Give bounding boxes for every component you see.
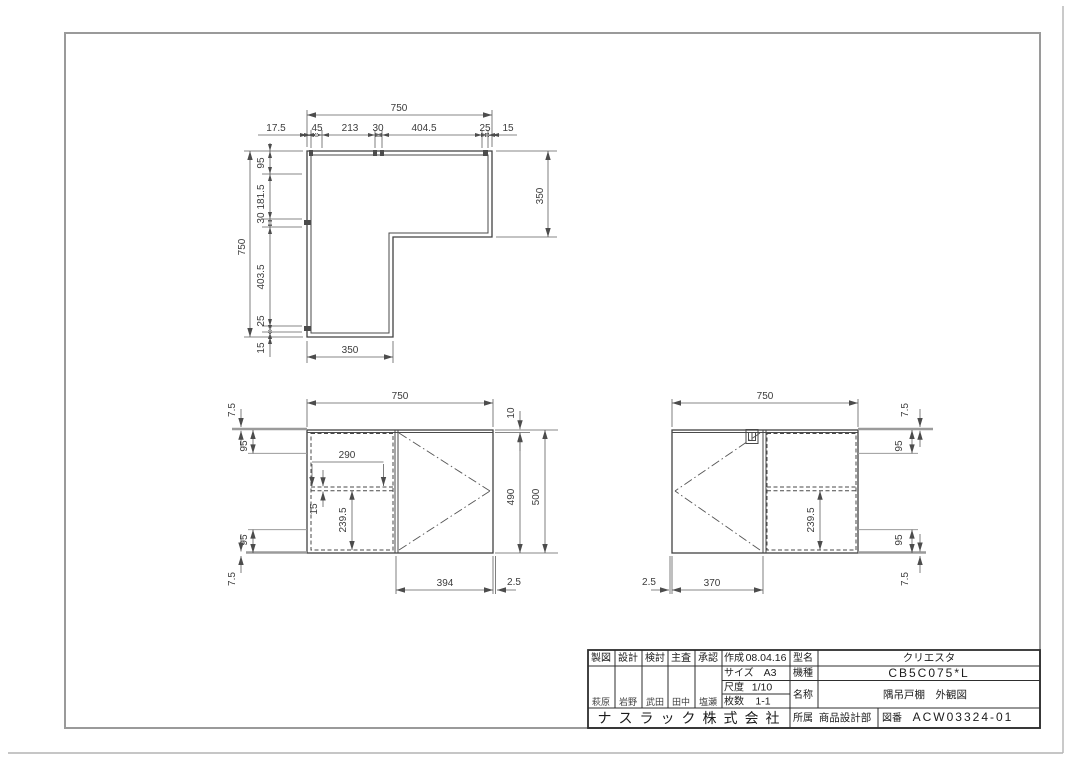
front-dim-top-gap: 10 (506, 407, 517, 419)
front-dim-door-height: 490 (506, 488, 517, 505)
side-dim-right-top-7-5: 7.5 (900, 403, 911, 417)
model-label: 型名 (793, 651, 813, 664)
model-value: クリエスタ (903, 652, 956, 664)
plan-dim-overall-depth: 750 (237, 238, 248, 255)
side-dim-shelf-height: 239.5 (806, 507, 817, 532)
plan-dim-30: 30 (372, 123, 384, 134)
drawing-sheet: 750 17.5 45 213 30 404.5 25 15 750 (0, 0, 1080, 764)
front-dim-shelf-height: 239.5 (338, 507, 349, 532)
side-dim-edge-gap: 2.5 (642, 577, 656, 588)
dept-label: 所属 (793, 712, 813, 724)
plan-outline-inner (311, 155, 488, 333)
cad-drawing: 750 17.5 45 213 30 404.5 25 15 750 (0, 0, 1080, 764)
front-dim-left-bottom-7-5: 7.5 (227, 572, 238, 586)
created-label: 作成 (724, 652, 744, 664)
plan-dim-15: 15 (502, 123, 514, 134)
plan-top-chain: 17.5 45 213 30 404.5 25 15 (258, 123, 517, 148)
size-value: A3 (764, 667, 777, 679)
plan-dim-17-5: 17.5 (266, 123, 286, 134)
plan-view: 750 17.5 45 213 30 404.5 25 15 750 (237, 103, 557, 363)
drawing-frame (65, 33, 1040, 728)
plan-dim-213: 213 (342, 123, 359, 134)
front-dim-left-top-7-5: 7.5 (227, 403, 238, 417)
scale-value: 1/10 (752, 682, 773, 694)
stamp-shiose: 塩瀬 (699, 696, 717, 707)
plan-outline (307, 151, 492, 337)
item-value: 隅吊戸棚 外観図 (883, 688, 967, 701)
side-cabinet-outline (672, 430, 858, 553)
role-label-drafting: 製図 (591, 651, 611, 664)
plan-left-chain: 95 181.5 30 403.5 25 15 (256, 143, 302, 357)
item-label: 名称 (793, 688, 813, 701)
plan-dim-181-5: 181.5 (256, 184, 267, 209)
plan-dim-45: 45 (311, 123, 323, 134)
machine-label: 機種 (793, 666, 813, 679)
front-dim-edge-gap: 2.5 (507, 577, 521, 588)
side-elevation: 750 239.5 7.5 95 95 7.5 (642, 391, 933, 594)
side-dim-right-bottom-95: 95 (894, 534, 905, 546)
side-dim-right-bottom-7-5: 7.5 (900, 572, 911, 586)
plan-dim-403-5: 403.5 (256, 264, 267, 289)
created-value: 08.04.16 (746, 652, 787, 664)
front-door-swing-line (399, 433, 490, 491)
role-label-chief: 主査 (671, 651, 691, 664)
plan-dim-25-left: 25 (256, 315, 267, 327)
paper-edge (8, 6, 1063, 753)
size-label: サイズ (724, 666, 754, 679)
plan-dim-25: 25 (479, 123, 491, 134)
dept-value: 商品設計部 (819, 711, 872, 724)
sheets-value: 1-1 (755, 696, 770, 708)
role-label-approval: 承認 (698, 651, 718, 664)
front-elevation: 750 290 15 239.5 10 490 500 (227, 391, 558, 594)
side-dim-right-top-95: 95 (894, 440, 905, 452)
role-label-review: 検討 (645, 651, 665, 664)
side-dim-door-width: 370 (704, 578, 721, 589)
stamp-takeda: 武田 (646, 696, 664, 707)
dwgno-value: ACW03324-01 (913, 710, 1014, 724)
sheets-label: 枚数 (724, 695, 744, 708)
plan-dim-30-left: 30 (256, 212, 267, 224)
role-label-design: 設計 (618, 651, 638, 664)
scale-label: 尺度 (724, 681, 744, 694)
stamp-iwano: 岩野 (619, 696, 637, 707)
plan-dim-overall-width: 750 (391, 103, 408, 114)
front-dim-shelf-thickness: 15 (309, 503, 320, 515)
front-door-swing-line (399, 491, 490, 550)
company-name: ナスラック株式会社 (598, 710, 787, 726)
plan-dim-15-left: 15 (256, 342, 267, 354)
front-cabinet-outline (307, 430, 493, 553)
stamp-hagiwara: 萩原 (592, 697, 610, 707)
front-dim-height: 500 (531, 488, 542, 505)
side-door-swing-line (675, 491, 760, 550)
plan-dim-95: 95 (256, 157, 267, 169)
plan-dim-bottom-width: 350 (342, 345, 359, 356)
door-handle (746, 430, 758, 444)
plan-dim-404-5: 404.5 (411, 123, 436, 134)
front-dim-shelf-pin-span: 290 (339, 450, 356, 461)
dwgno-label: 図番 (882, 712, 902, 724)
front-dim-door-width: 394 (437, 578, 454, 589)
plan-hardware-marks (304, 150, 488, 331)
plan-dim-right-depth: 350 (535, 187, 546, 204)
title-block: 製図 設計 検討 主査 承認 萩原 岩野 武田 田中 塩瀬 作成 08.04.1… (588, 650, 1040, 728)
machine-value: CB5C075*L (888, 666, 969, 680)
side-dim-width: 750 (757, 391, 774, 402)
side-door-swing-line (675, 433, 760, 491)
stamp-tanaka: 田中 (672, 696, 690, 707)
front-dim-left-top-95: 95 (239, 440, 250, 452)
front-dim-width: 750 (392, 391, 409, 402)
